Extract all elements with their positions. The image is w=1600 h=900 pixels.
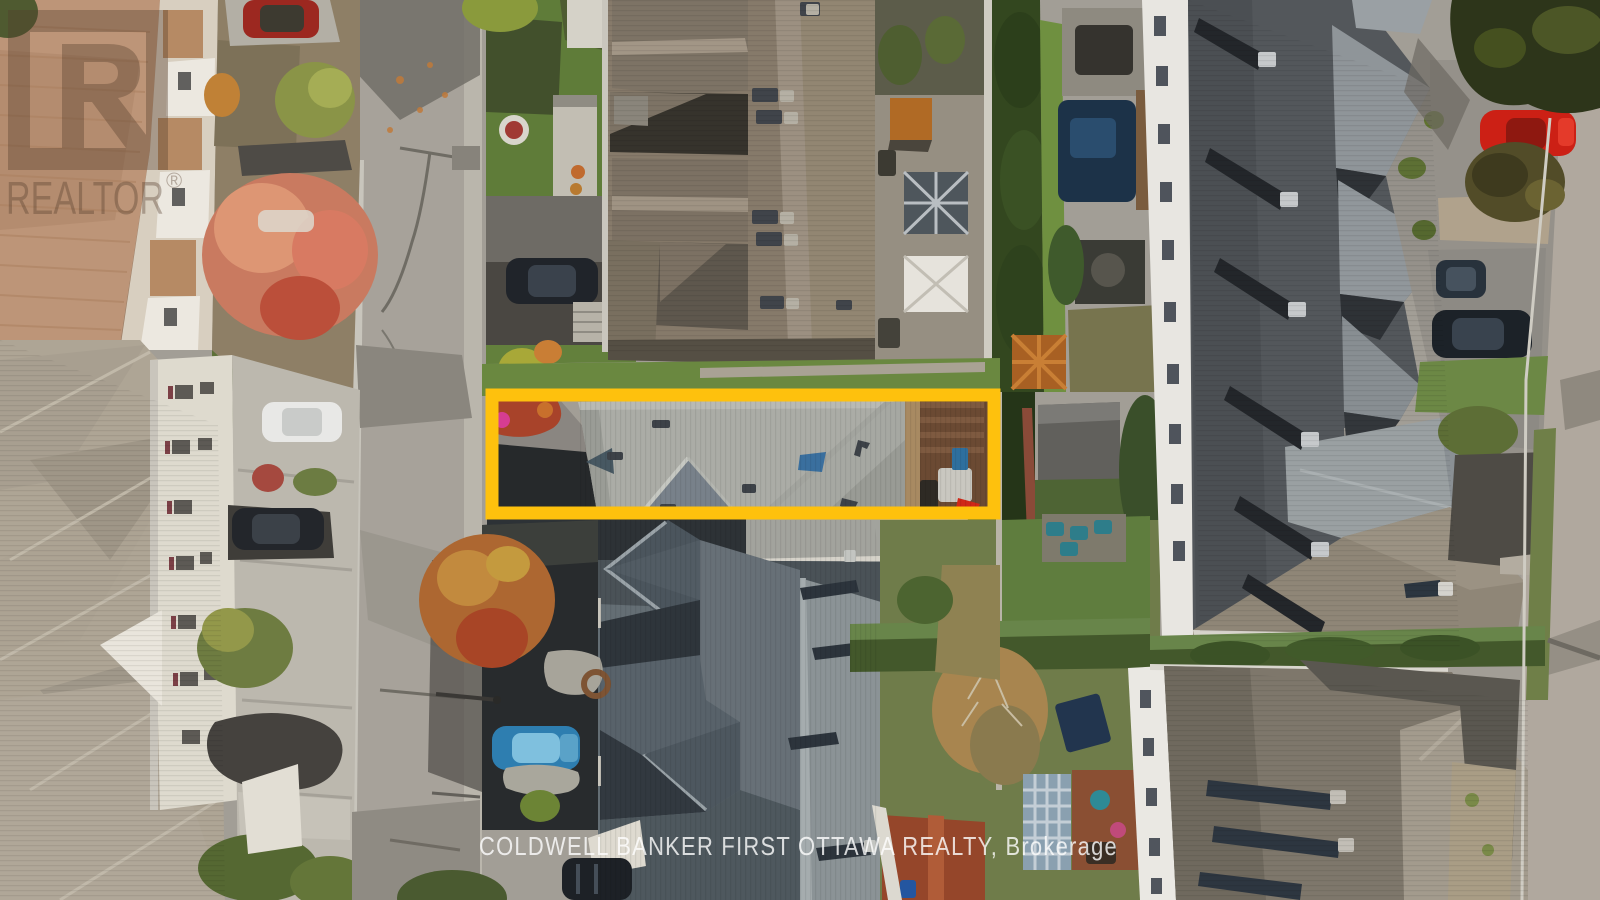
svg-text:REALTOR: REALTOR (6, 172, 164, 224)
svg-text:®: ® (166, 168, 182, 193)
svg-text:COLDWELL BANKER FIRST OTTAWA R: COLDWELL BANKER FIRST OTTAWA REALTY, Bro… (479, 831, 1118, 861)
